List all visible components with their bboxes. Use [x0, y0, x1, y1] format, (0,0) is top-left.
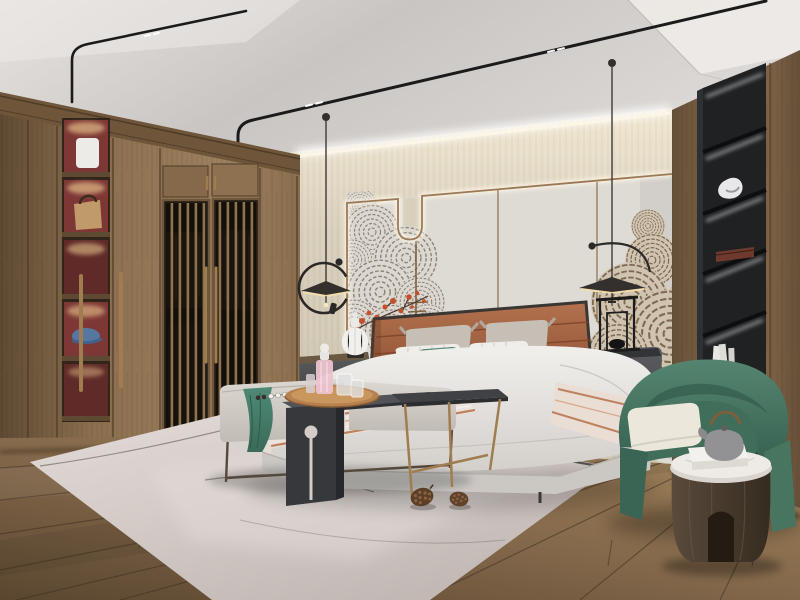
niche-4: [62, 302, 110, 361]
handbag: [74, 200, 102, 230]
drum-cutout: [708, 512, 734, 563]
niche-2: [62, 180, 110, 237]
niche-1: [62, 120, 110, 177]
niche-5: [62, 364, 110, 421]
niche-3: [62, 240, 110, 299]
scene-canvas: [0, 0, 800, 600]
white-linen: [76, 138, 99, 168]
lattice-door-left: [163, 200, 209, 452]
table-cutout-hole: [305, 426, 318, 439]
bedroom-render: [0, 0, 800, 600]
display-niche-column: [62, 118, 110, 422]
lamp-teapot-silhouette: [609, 339, 625, 349]
